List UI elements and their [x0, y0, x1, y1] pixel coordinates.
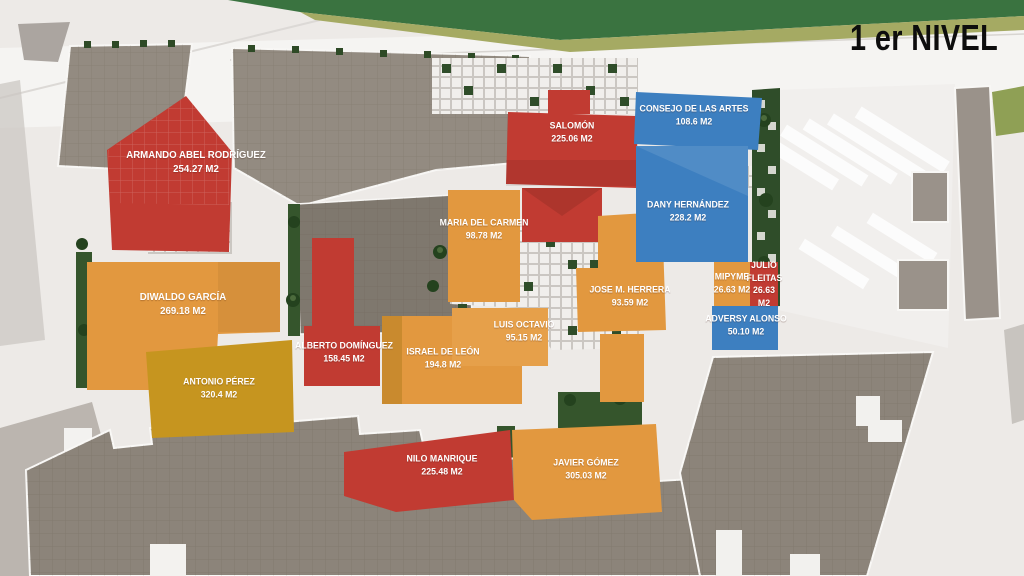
site-plan-svg	[0, 0, 1024, 576]
block-orange-column	[600, 334, 644, 402]
unit-name: DANY HERNÁNDEZ	[647, 199, 729, 212]
unit-area: 26.63 m2	[713, 284, 752, 297]
unit-area: 254.27 m2	[126, 163, 266, 177]
unit-area: 320.4 m2	[183, 389, 255, 402]
site-plan-render: ARMANDO ABEL RODRÍGUEZ 254.27 m2 SALOMÓN…	[0, 0, 1024, 576]
unit-area: 194.8 m2	[406, 359, 479, 372]
unit-label-nilo: NILO MANRIQUE 225.48 m2	[407, 453, 478, 478]
unit-name: ARMANDO ABEL RODRÍGUEZ	[126, 149, 266, 163]
unit-name: NILO MANRIQUE	[407, 453, 478, 466]
unit-label-dany: DANY HERNÁNDEZ 228.2 m2	[647, 199, 729, 224]
unit-label-israel: ISRAEL DE LEÓN 194.8 m2	[406, 346, 479, 371]
unit-label-herrera: JOSE M. HERRERA 93.59 m2	[589, 284, 670, 309]
unit-name: JULIO FLEITAS	[747, 260, 782, 285]
unit-name: DIWALDO GARCÍA	[140, 291, 226, 305]
unit-area: 50.10 m2	[705, 326, 787, 339]
unit-area: 26.63 m2	[747, 285, 782, 310]
roof-right-a	[912, 172, 948, 222]
unit-area: 108.6 m2	[640, 116, 749, 129]
unit-name: JOSE M. HERRERA	[589, 284, 670, 297]
unit-area: 95.15 m2	[494, 332, 555, 345]
unit-label-consejo: CONSEJO DE LAS ARTES 108.6 m2	[640, 103, 749, 128]
unit-name: SALOMÓN	[550, 120, 595, 133]
unit-label-javier: JAVIER GÓMEZ 305.03 m2	[553, 457, 618, 482]
unit-name: ALBERTO DOMÍNGUEZ	[295, 340, 393, 353]
unit-area: 305.03 m2	[553, 470, 618, 483]
unit-name: MIPYME	[713, 271, 752, 284]
unit-label-salomon: SALOMÓN 225.06 m2	[550, 120, 595, 145]
unit-area: 158.45 m2	[295, 353, 393, 366]
unit-label-julio: JULIO FLEITAS 26.63 m2	[747, 260, 782, 310]
unit-label-maria: MARIA DEL CARMEN 98.78 m2	[440, 217, 529, 242]
unit-area: 225.06 m2	[550, 133, 595, 146]
unit-area: 269.18 m2	[140, 305, 226, 319]
unit-label-adversy: ADVERSY ALONSO 50.10 m2	[705, 313, 787, 338]
unit-label-armando: ARMANDO ABEL RODRÍGUEZ 254.27 m2	[126, 149, 266, 177]
roof-right-b	[898, 260, 948, 310]
unit-label-diwaldo: DIWALDO GARCÍA 269.18 m2	[140, 291, 226, 319]
block-maria	[448, 190, 520, 302]
unit-label-alberto: ALBERTO DOMÍNGUEZ 158.45 m2	[295, 340, 393, 365]
unit-area: 98.78 m2	[440, 230, 529, 243]
unit-label-mipyme: MIPYME 26.63 m2	[713, 271, 752, 296]
unit-name: CONSEJO DE LAS ARTES	[640, 103, 749, 116]
unit-name: ISRAEL DE LEÓN	[406, 346, 479, 359]
level-title: 1 er NIVEL	[850, 20, 998, 56]
unit-area: 93.59 m2	[589, 297, 670, 310]
unit-area: 228.2 m2	[647, 212, 729, 225]
unit-name: ANTONIO PÉREZ	[183, 376, 255, 389]
block-mid-red	[312, 238, 354, 334]
unit-name: MARIA DEL CARMEN	[440, 217, 529, 230]
unit-name: ADVERSY ALONSO	[705, 313, 787, 326]
unit-name: JAVIER GÓMEZ	[553, 457, 618, 470]
unit-label-antonio: ANTONIO PÉREZ 320.4 m2	[183, 376, 255, 401]
unit-label-luis: LUIS OCTAVIO 95.15 m2	[494, 319, 555, 344]
unit-name: LUIS OCTAVIO	[494, 319, 555, 332]
unit-area: 225.48 m2	[407, 466, 478, 479]
